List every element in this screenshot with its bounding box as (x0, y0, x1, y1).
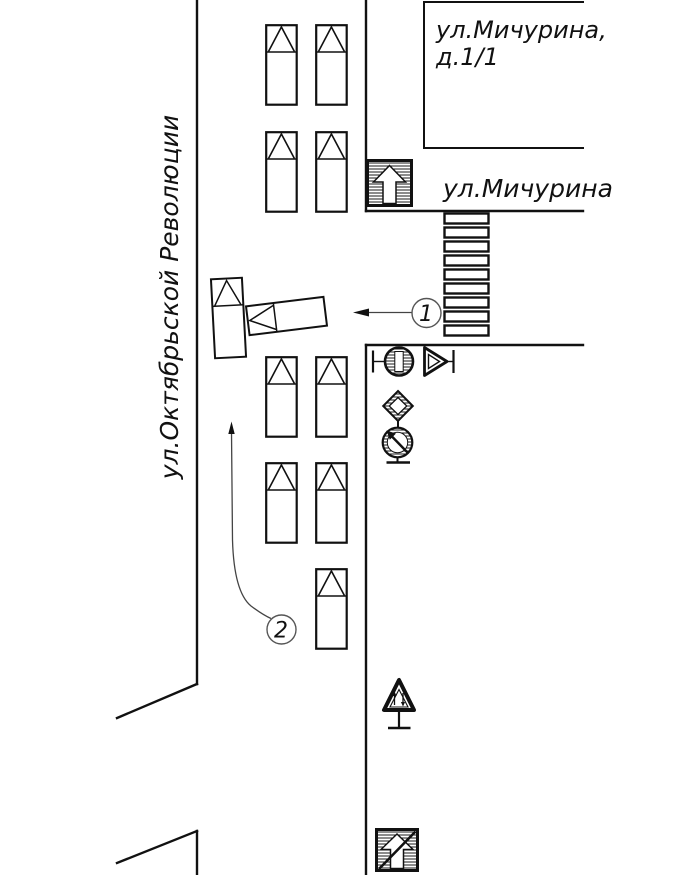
collision-vehicle-1 (211, 278, 246, 359)
building-label-line2: д.1/1 (435, 43, 499, 71)
street-label-oktyabrskoy-revolyucii: ул.Октябрьской Революции (155, 115, 184, 480)
parked-car (266, 357, 297, 437)
two-way-traffic-sign-icon (384, 680, 414, 710)
crosswalk-zebra (445, 214, 489, 336)
marker-2-leader (232, 432, 272, 619)
marker-1-arrowhead-icon (353, 309, 369, 317)
parked-car (266, 132, 297, 212)
marker-2-arrowhead-icon (228, 422, 234, 435)
parked-car (316, 25, 347, 105)
parked-car (266, 25, 297, 105)
parked-car (266, 463, 297, 543)
accident-scheme: ул.Мичурина, д.1/1 ул.Мичурина ул.Октябр… (0, 0, 700, 875)
left-curb-break-lower (117, 831, 197, 863)
end-of-one-way-road-sign-icon (377, 830, 418, 871)
marker-1: 1 (353, 299, 441, 328)
parked-car (316, 569, 347, 649)
road-edges (117, 0, 583, 875)
parked-car (316, 463, 347, 543)
parked-car (316, 132, 347, 212)
parked-car (316, 357, 347, 437)
main-road-no-parking-post (383, 391, 413, 463)
collision-vehicle-2 (246, 297, 327, 335)
one-way-road-sign-icon (368, 161, 412, 206)
scheme-drawing: ул.Мичурина, д.1/1 ул.Мичурина ул.Октябр… (0, 0, 700, 875)
no-parking-arrow-sign-icon (383, 428, 413, 458)
parked-cars (266, 25, 347, 649)
main-road-sign-icon (383, 391, 413, 421)
two-way-traffic-sign-post (384, 680, 414, 728)
left-curb-break-upper (117, 684, 197, 718)
marker-2-number: 2 (274, 619, 288, 644)
no-entry-sign-icon (385, 348, 413, 376)
give-way-sign-icon (425, 348, 448, 376)
marker-1-number: 1 (419, 302, 433, 327)
street-label-michurina: ул.Мичурина (442, 174, 613, 203)
no-entry-give-way-assembly (373, 348, 454, 376)
building-label-line1: ул.Мичурина, (435, 16, 607, 44)
